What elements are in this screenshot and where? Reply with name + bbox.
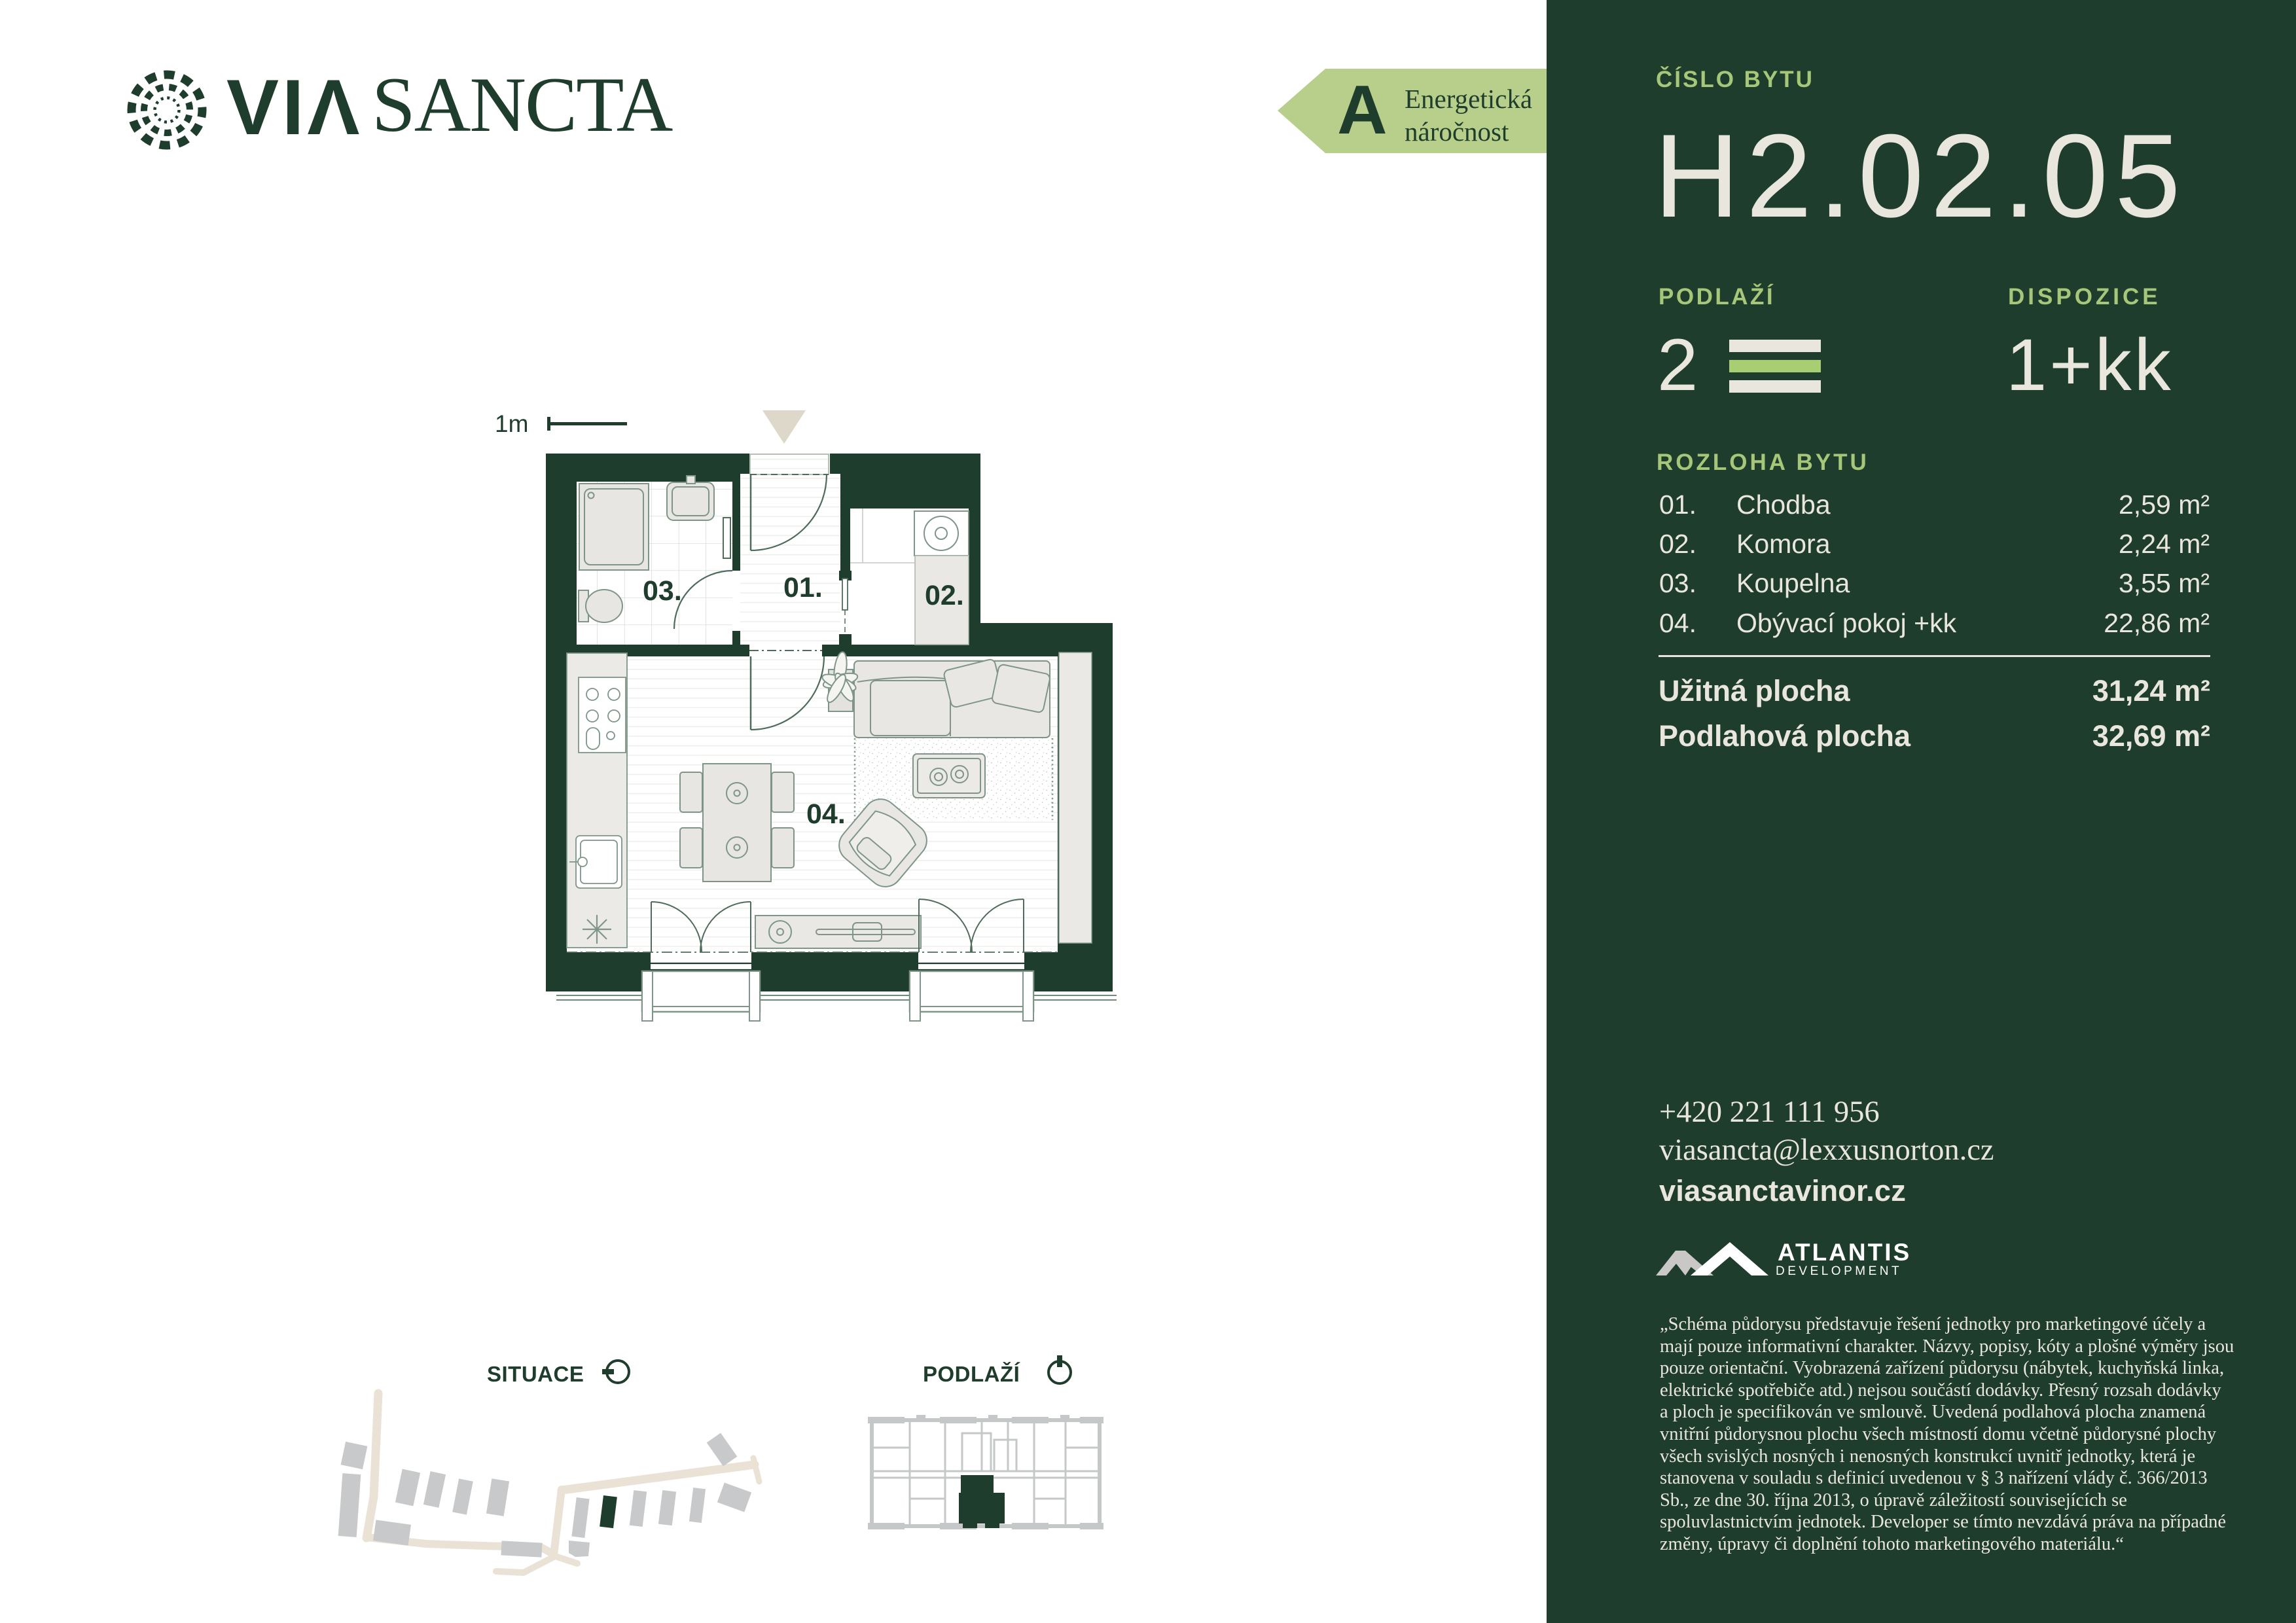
- svg-text:04.: 04.: [806, 798, 846, 830]
- svg-text:03.: 03.: [643, 575, 682, 607]
- svg-text:01.: 01.: [783, 572, 823, 603]
- svg-text:02.: 02.: [925, 580, 964, 611]
- svg-text:1m: 1m: [495, 410, 528, 437]
